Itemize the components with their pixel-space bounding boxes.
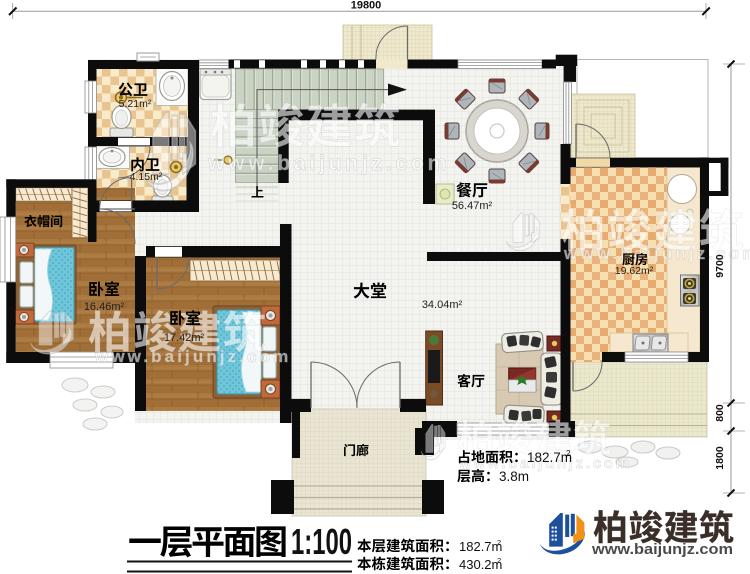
- svg-text:16.46m²: 16.46m²: [84, 301, 125, 313]
- svg-text:www.baijunjz.com: www.baijunjz.com: [207, 152, 450, 175]
- svg-text:2: 2: [497, 538, 501, 547]
- svg-text:1800: 1800: [714, 446, 726, 470]
- svg-text:3.8m: 3.8m: [499, 469, 529, 484]
- svg-text:34.04m²: 34.04m²: [422, 299, 463, 311]
- svg-text:800: 800: [714, 404, 726, 422]
- svg-text:56.47m²: 56.47m²: [452, 200, 493, 212]
- svg-text:2: 2: [566, 449, 571, 458]
- svg-text:430.2m: 430.2m: [459, 557, 502, 572]
- svg-text:2: 2: [497, 556, 501, 565]
- svg-text:182.7m: 182.7m: [459, 539, 502, 554]
- svg-text:19800: 19800: [351, 0, 382, 12]
- svg-text:4.15m²: 4.15m²: [130, 171, 163, 183]
- svg-text:www.baijunjz.com: www.baijunjz.com: [591, 542, 733, 558]
- svg-text:www.baijunjz.com: www.baijunjz.com: [94, 347, 291, 366]
- svg-text:9700: 9700: [714, 254, 726, 278]
- svg-text:1:100: 1:100: [291, 521, 352, 562]
- svg-text:5.21m²: 5.21m²: [119, 98, 152, 110]
- svg-text:17.42m²: 17.42m²: [164, 332, 205, 344]
- svg-text:19.62m²: 19.62m²: [615, 265, 654, 277]
